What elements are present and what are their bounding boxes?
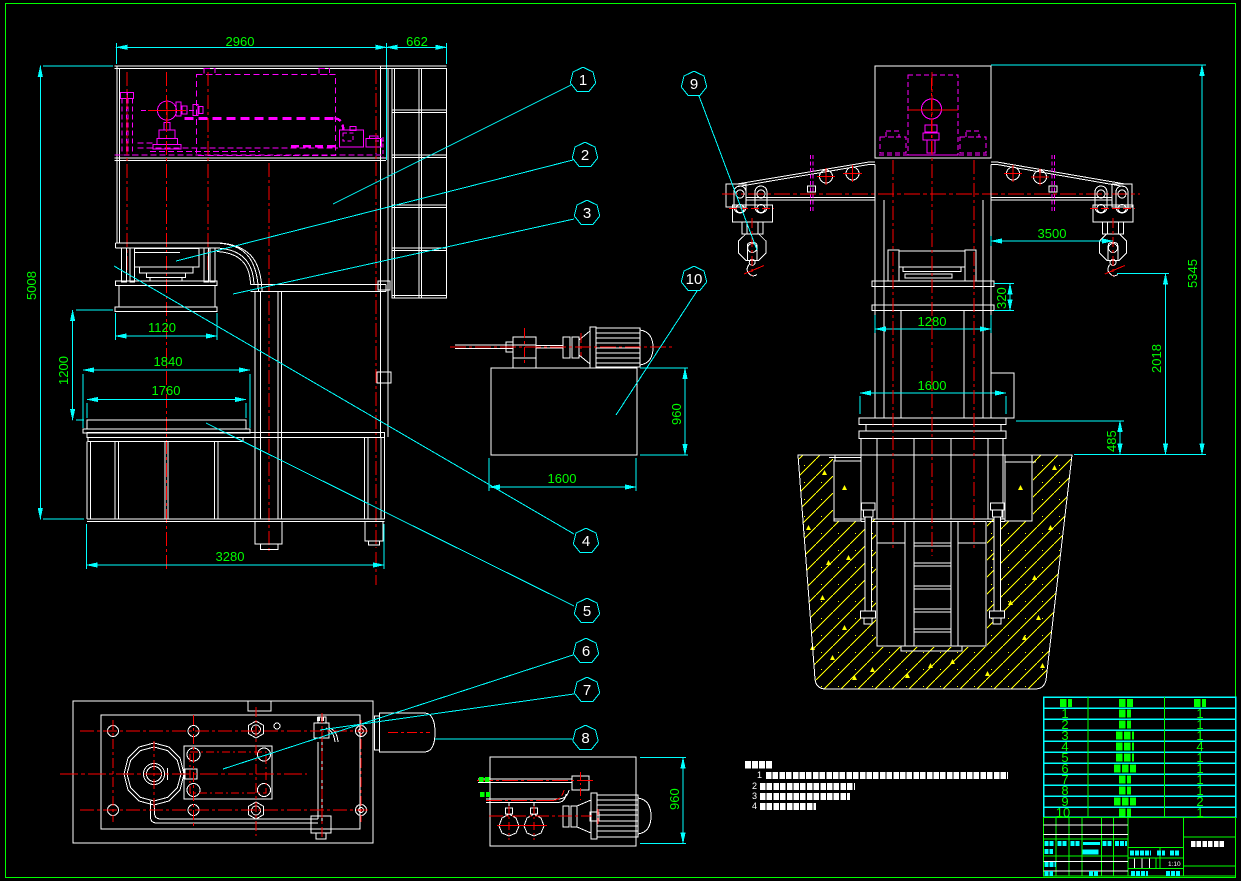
svg-text:5008: 5008: [24, 271, 39, 300]
svg-text:5: 5: [583, 603, 591, 620]
svg-text:3280: 3280: [216, 549, 245, 564]
svg-text:2960: 2960: [226, 34, 255, 49]
svg-text:7: 7: [583, 682, 591, 699]
svg-text:10: 10: [686, 271, 703, 288]
svg-text:5345: 5345: [1185, 259, 1200, 288]
svg-text:1120: 1120: [148, 320, 176, 335]
svg-text:485: 485: [1104, 430, 1119, 452]
svg-text:3500: 3500: [1038, 226, 1067, 241]
svg-text:4: 4: [752, 801, 757, 811]
svg-text:960: 960: [669, 403, 684, 425]
svg-text:3: 3: [583, 205, 591, 222]
svg-text:320: 320: [994, 287, 1009, 309]
svg-text:662: 662: [406, 34, 428, 49]
svg-text:1200: 1200: [56, 356, 71, 385]
svg-text:960: 960: [667, 788, 682, 810]
svg-text:2: 2: [581, 147, 589, 164]
svg-text:1760: 1760: [152, 383, 181, 398]
svg-text:1:10: 1:10: [1168, 861, 1181, 868]
svg-text:1840: 1840: [154, 354, 183, 369]
svg-text:1: 1: [579, 72, 587, 89]
svg-text:4: 4: [582, 533, 590, 550]
svg-text:1: 1: [757, 770, 762, 780]
svg-text:8: 8: [581, 730, 589, 747]
svg-text:2018: 2018: [1149, 344, 1164, 373]
svg-text:1600: 1600: [548, 471, 577, 486]
svg-text:6: 6: [582, 643, 590, 660]
svg-text:2: 2: [752, 781, 757, 791]
svg-text:3: 3: [752, 791, 757, 801]
svg-text:9: 9: [690, 76, 698, 93]
